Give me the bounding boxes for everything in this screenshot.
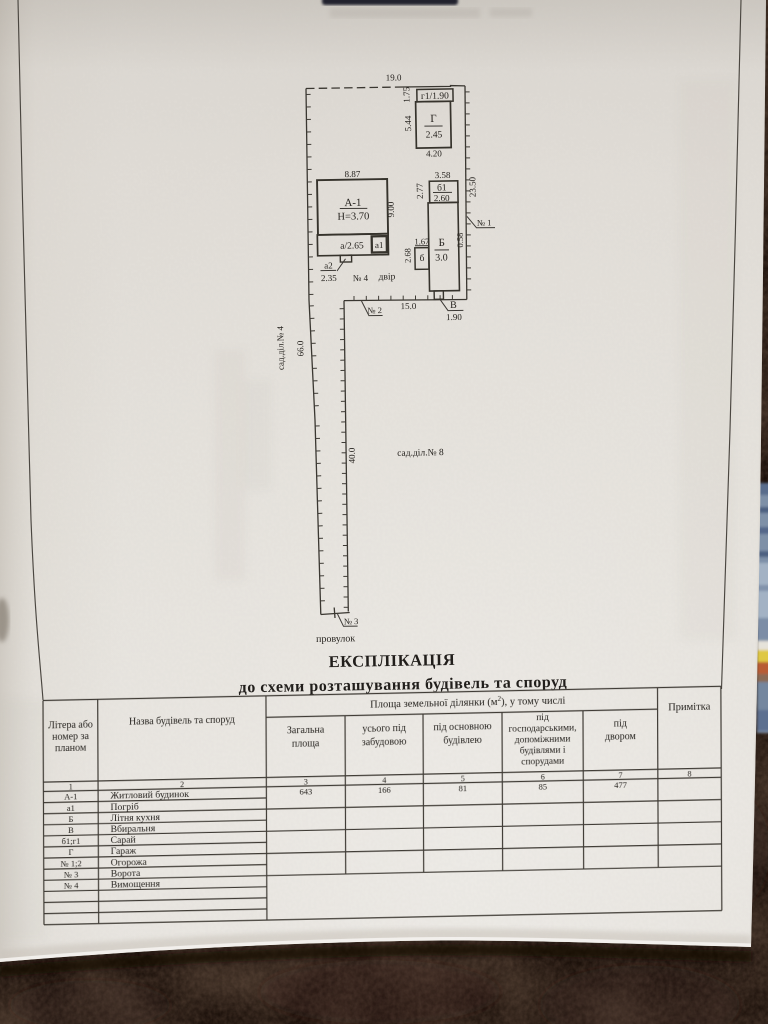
svg-text:усього під: усього під [362,723,406,735]
svg-text:А-1: А-1 [344,197,361,209]
svg-text:№ 4: № 4 [353,273,369,283]
svg-text:3.58: 3.58 [435,170,451,180]
svg-text:2.60: 2.60 [434,193,450,203]
svg-text:двір: двір [379,272,396,282]
svg-text:№ 2: № 2 [367,305,382,315]
svg-text:Сарай: Сарай [111,835,136,847]
svg-text:166: 166 [378,785,391,795]
svg-text:Г: Г [69,847,74,857]
svg-text:1.90: 1.90 [446,312,462,322]
svg-text:Вбиральня: Вбиральня [111,823,156,835]
svg-text:Гараж: Гараж [111,846,137,858]
svg-text:б1;г1: б1;г1 [62,836,81,846]
svg-text:площа: площа [292,738,320,750]
svg-text:4: 4 [382,776,386,785]
svg-text:а1: а1 [375,240,384,250]
svg-text:2.45: 2.45 [426,130,443,140]
svg-text:а1: а1 [67,803,75,813]
svg-text:допоміжними: допоміжними [515,734,571,745]
svg-text:Загальна: Загальна [287,725,325,737]
svg-text:Літня кухня: Літня кухня [110,812,160,824]
svg-text:Б: Б [68,814,73,824]
svg-text:б: б [419,253,424,264]
svg-text:15.0: 15.0 [400,301,416,311]
svg-text:3: 3 [304,777,308,786]
svg-text:Г: Г [430,113,437,125]
svg-text:23.50: 23.50 [467,176,477,197]
svg-text:7: 7 [619,771,623,780]
svg-text:а2: а2 [324,260,333,270]
svg-text:1.75: 1.75 [401,86,411,102]
svg-text:6: 6 [541,772,545,781]
svg-text:№ 3: № 3 [344,616,359,626]
svg-text:№ 4: № 4 [64,880,79,890]
svg-text:забудовою: забудовою [362,736,407,748]
svg-text:Н=3.70: Н=3.70 [337,211,369,223]
svg-text:477: 477 [614,780,627,790]
svg-text:провулок: провулок [316,633,355,645]
svg-text:під: під [614,718,627,729]
svg-text:81: 81 [459,783,468,793]
svg-text:сад.діл.№ 4: сад.діл.№ 4 [275,325,286,370]
svg-text:під основною: під основною [433,721,492,733]
svg-text:Літера або: Літера або [48,719,93,731]
svg-text:4.20: 4.20 [426,148,442,158]
svg-text:А-1: А-1 [64,791,77,801]
svg-text:8: 8 [688,769,692,778]
svg-text:№ 1: № 1 [477,217,492,227]
svg-text:господарськими,: господарськими, [509,723,577,734]
svg-text:В: В [68,825,74,835]
svg-text:В: В [450,300,457,311]
svg-text:ЕКСПЛІКАЦІЯ: ЕКСПЛІКАЦІЯ [328,650,455,671]
svg-text:номер за: номер за [52,731,89,743]
svg-text:85: 85 [539,782,548,792]
svg-text:планом: планом [55,743,87,755]
svg-text:2.35: 2.35 [321,273,337,283]
svg-text:б1: б1 [437,182,447,193]
svg-text:г1/1.90: г1/1.90 [421,92,449,102]
svg-text:66.0: 66.0 [295,340,305,356]
svg-text:8.87: 8.87 [344,169,360,179]
svg-text:будівлями і: будівлями і [520,745,566,757]
svg-text:19.0: 19.0 [386,72,402,82]
svg-text:Примітка: Примітка [668,702,711,714]
svg-text:Вимощення: Вимощення [111,879,161,891]
svg-text:1: 1 [69,782,73,791]
svg-text:2.68: 2.68 [402,248,412,263]
svg-text:2: 2 [180,780,184,789]
svg-text:643: 643 [299,787,312,797]
svg-text:спорудами: спорудами [521,757,564,768]
svg-text:№ 1;2: № 1;2 [61,858,82,868]
svg-text:під: під [536,713,549,723]
svg-text:Житловий будинок: Житловий будинок [110,789,189,802]
svg-text:5: 5 [461,774,465,783]
svg-text:0.58: 0.58 [455,233,465,248]
svg-text:№ 3: № 3 [64,869,79,879]
svg-text:Назва будівель та споруд: Назва будівель та споруд [129,714,235,727]
svg-text:Огорожа: Огорожа [111,857,148,869]
svg-text:Б: Б [438,237,445,249]
svg-text:сад.діл.№ 8: сад.діл.№ 8 [397,448,444,459]
svg-text:5.44: 5.44 [403,115,413,131]
svg-text:Ворота: Ворота [111,868,141,880]
svg-text:двором: двором [605,731,637,743]
svg-text:2.77: 2.77 [415,183,425,199]
svg-text:40.0: 40.0 [347,447,357,463]
svg-text:а/2.65: а/2.65 [340,241,364,251]
svg-text:Погріб: Погріб [110,801,138,813]
svg-text:3.0: 3.0 [435,252,448,263]
svg-text:будівлею: будівлею [443,735,482,747]
svg-text:9.00: 9.00 [386,201,396,217]
svg-text:1.67: 1.67 [414,236,429,246]
